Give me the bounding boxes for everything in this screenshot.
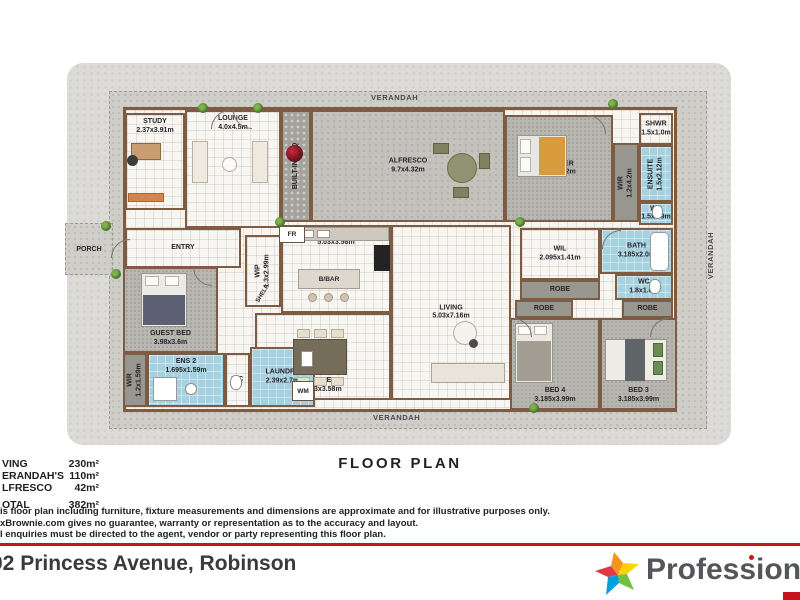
room-built-in-bbq: BUILT-IN BBQ bbox=[281, 110, 311, 222]
area-label: ERANDAH'S bbox=[2, 470, 64, 482]
room-robe-bed3: ROBE bbox=[622, 300, 673, 318]
room-robe-hall: ROBE bbox=[520, 280, 600, 300]
plan-canvas: PORCH STUDY2.37x3.91mLOUNGE4.0x4.5mBUILT… bbox=[65, 55, 735, 450]
room-label: ROBE bbox=[522, 286, 598, 295]
room-ensuite: ENSUITE1.5x2.12m bbox=[639, 145, 673, 202]
room-wir-master: WIR1.2x4.2m bbox=[613, 143, 639, 222]
room-wil: WIL2.095x1.41m bbox=[520, 228, 600, 280]
area-label: LFRESCO bbox=[2, 482, 52, 494]
plan-title: FLOOR PLAN bbox=[0, 455, 800, 472]
verandah-label-bottom: VERANDAH bbox=[373, 413, 420, 422]
bed-blanket-icon bbox=[517, 341, 551, 381]
area-row-alfresco: LFRESCO 42m² bbox=[2, 482, 99, 494]
room-label: ROBE bbox=[624, 305, 671, 314]
room-shwr: SHWR1.5x1.0m bbox=[639, 113, 673, 145]
room-label: BED 43.185x3.99m bbox=[512, 387, 598, 404]
toilet-icon bbox=[649, 279, 661, 294]
tv-unit-icon bbox=[431, 363, 505, 383]
professionals-logo: Professionals bbox=[592, 549, 800, 597]
footer-divider bbox=[0, 543, 800, 546]
breakfast-bar-box: B/BAR bbox=[305, 274, 353, 285]
washing-machine-label: WM bbox=[297, 388, 309, 395]
brand-i-dot bbox=[749, 555, 754, 560]
fridge-box: FR bbox=[279, 226, 305, 243]
dining-chair-icon bbox=[297, 329, 310, 338]
area-row-verandahs: ERANDAH'S 110m² bbox=[2, 470, 99, 482]
outdoor-table-icon bbox=[447, 153, 477, 183]
coffee-table-icon bbox=[222, 157, 237, 172]
room-label: SHWR1.5x1.0m bbox=[641, 121, 671, 138]
plant-icon bbox=[608, 99, 618, 109]
verandah-label-right: VERANDAH bbox=[706, 232, 715, 279]
pillow-icon bbox=[653, 361, 663, 375]
room-label: WIR1.2x1.59m bbox=[127, 363, 144, 396]
outdoor-chair-icon bbox=[479, 153, 490, 169]
stool-icon bbox=[324, 293, 333, 302]
pillow-icon bbox=[520, 139, 531, 154]
area-value: 230m² bbox=[69, 458, 99, 470]
room-label: ENSUITE1.5x2.12m bbox=[648, 157, 665, 190]
stool-icon bbox=[308, 293, 317, 302]
property-address: 02 Princess Avenue, Robinson bbox=[0, 552, 296, 576]
porch-label: PORCH bbox=[76, 246, 101, 253]
room-label: LOUNGE4.0x4.5m bbox=[187, 115, 279, 132]
sofa-icon bbox=[192, 141, 208, 183]
plant-icon bbox=[529, 403, 539, 413]
room-wc-main: WC1.8x1.0m bbox=[615, 274, 673, 300]
room-label: WIL2.095x1.41m bbox=[522, 246, 598, 263]
area-schedule: VING 230m² ERANDAH'S 110m² LFRESCO 42m² … bbox=[2, 458, 99, 511]
area-value: 110m² bbox=[69, 470, 99, 482]
disclaimer: is floor plan including furniture, fixtu… bbox=[0, 506, 640, 541]
bathtub-icon bbox=[650, 232, 669, 271]
corner-accent bbox=[783, 592, 800, 600]
breakfast-bar-label: B/BAR bbox=[319, 276, 340, 283]
disclaimer-line: l enquiries must be directed to the agen… bbox=[0, 529, 640, 541]
bed-runner-icon bbox=[625, 339, 645, 381]
plant-icon bbox=[101, 221, 111, 231]
room-label: WC1.8x1.0m bbox=[617, 279, 671, 296]
pillow-icon bbox=[653, 343, 663, 357]
disclaimer-line: xBrownie.com gives no guarantee, warrant… bbox=[0, 518, 640, 530]
side-table-icon bbox=[469, 339, 478, 348]
brand-name: Professionals bbox=[646, 553, 800, 587]
cooktop-icon bbox=[374, 245, 390, 271]
bed-blanket-icon bbox=[539, 137, 565, 175]
toilet-icon bbox=[230, 375, 242, 390]
plant-icon bbox=[253, 103, 263, 113]
room-label: ENTRY bbox=[127, 244, 239, 253]
plant-icon bbox=[111, 269, 121, 279]
dining-chair-icon bbox=[331, 377, 344, 386]
room-label: STUDY2.37x3.91m bbox=[127, 118, 183, 135]
verandah-label-top: VERANDAH bbox=[371, 93, 418, 102]
washing-machine-box: WM bbox=[292, 381, 314, 401]
outdoor-chair-icon bbox=[453, 187, 469, 198]
pillow-icon bbox=[165, 276, 179, 286]
room-wir-guest: WIR1.2x1.59m bbox=[123, 353, 147, 407]
room-label: ROBE bbox=[517, 305, 571, 314]
area-value: 42m² bbox=[74, 482, 99, 494]
dining-chair-icon bbox=[331, 329, 344, 338]
basin-icon bbox=[185, 383, 197, 395]
room-entry: ENTRY bbox=[125, 228, 241, 268]
floor-plan-flyer: PORCH STUDY2.37x3.91mLOUNGE4.0x4.5mBUILT… bbox=[0, 0, 800, 600]
laundry-trough-icon bbox=[301, 351, 313, 367]
office-chair-icon bbox=[127, 155, 138, 166]
area-row-living: VING 230m² bbox=[2, 458, 99, 470]
shower-icon bbox=[153, 377, 177, 401]
stool-icon bbox=[340, 293, 349, 302]
bbq-icon bbox=[286, 145, 303, 162]
room-label: GUEST BED3.98x3.6m bbox=[125, 330, 216, 347]
sofa-icon bbox=[252, 141, 268, 183]
toilet-icon bbox=[652, 205, 663, 219]
fridge-label: FR bbox=[288, 231, 297, 238]
bed-blanket-icon bbox=[143, 295, 185, 325]
outdoor-chair-icon bbox=[433, 143, 449, 154]
dining-chair-icon bbox=[314, 377, 327, 386]
room-label: ENS 21.695x1.59m bbox=[149, 358, 223, 375]
disclaimer-line: is floor plan including furniture, fixtu… bbox=[0, 506, 640, 518]
sink-icon bbox=[317, 230, 330, 238]
room-label: BED 33.185x3.99m bbox=[602, 387, 675, 404]
bench-seat-icon bbox=[128, 193, 164, 202]
plant-icon bbox=[198, 103, 208, 113]
room-label: WIP1.3x2.99m bbox=[255, 254, 272, 287]
room-label: WIR1.2x4.2m bbox=[618, 168, 635, 198]
pillow-icon bbox=[145, 276, 159, 286]
pillow-icon bbox=[520, 157, 531, 172]
dining-chair-icon bbox=[314, 329, 327, 338]
plant-icon bbox=[515, 217, 525, 227]
plant-icon bbox=[275, 217, 285, 227]
area-label: VING bbox=[2, 458, 28, 470]
room-robe-bed4: ROBE bbox=[515, 300, 573, 318]
room-label: LIVING5.03x7.16m bbox=[393, 304, 509, 321]
pillow-icon bbox=[534, 326, 547, 335]
professionals-star-icon bbox=[592, 549, 642, 597]
